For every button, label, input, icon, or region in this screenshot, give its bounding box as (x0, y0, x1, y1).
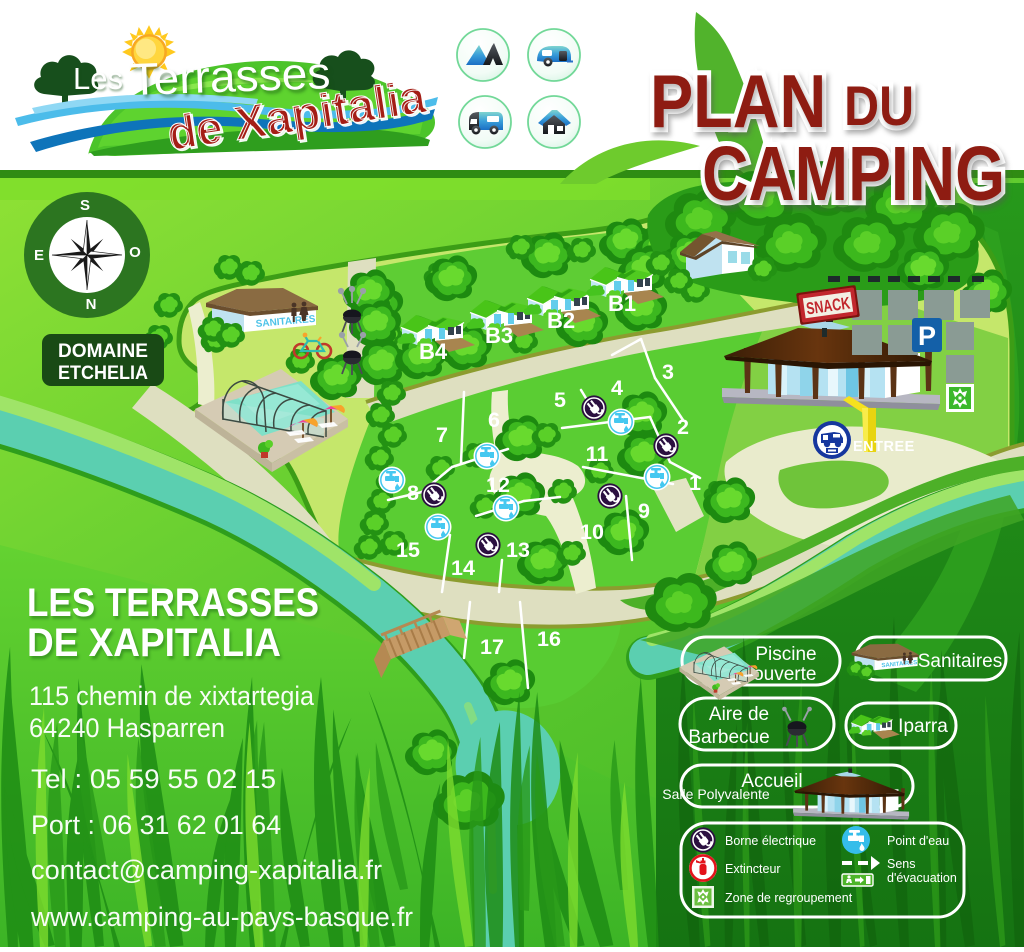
svg-text:d'évacuation: d'évacuation (887, 871, 957, 885)
svg-text:8: 8 (407, 481, 419, 505)
svg-text:DE XAPITALIA: DE XAPITALIA (27, 621, 281, 665)
svg-text:64240 Hasparren: 64240 Hasparren (29, 713, 225, 743)
svg-text:Borne électrique: Borne électrique (725, 834, 816, 848)
svg-text:3: 3 (662, 360, 674, 384)
svg-text:17: 17 (480, 635, 504, 659)
svg-text:Aire de: Aire de (709, 704, 769, 725)
svg-text:Sanitaires: Sanitaires (918, 651, 1003, 672)
svg-text:E: E (34, 247, 44, 264)
svg-text:Tel : 05 59 55 02 15: Tel : 05 59 55 02 15 (31, 764, 276, 794)
svg-text:Salle Polyvalente: Salle Polyvalente (662, 786, 770, 802)
svg-text:DOMAINE: DOMAINE (58, 341, 148, 362)
svg-text:ETCHELIA: ETCHELIA (58, 363, 148, 384)
svg-text:13: 13 (506, 538, 530, 562)
svg-text:15: 15 (396, 538, 420, 562)
svg-text:12: 12 (486, 473, 510, 497)
svg-text:9: 9 (638, 499, 650, 523)
svg-text:Extincteur: Extincteur (725, 862, 781, 876)
svg-text:14: 14 (451, 556, 475, 580)
svg-text:O: O (129, 244, 141, 261)
svg-text:ENTREE: ENTREE (853, 439, 915, 455)
svg-text:Iparra: Iparra (898, 716, 948, 737)
svg-text:B3: B3 (485, 323, 513, 348)
svg-text:7: 7 (436, 423, 448, 447)
svg-text:Zone de regroupement: Zone de regroupement (725, 891, 853, 905)
svg-text:11: 11 (586, 442, 609, 466)
svg-text:contact@camping-xapitalia.fr: contact@camping-xapitalia.fr (31, 855, 382, 885)
svg-text:B4: B4 (419, 339, 448, 364)
svg-text:1: 1 (689, 471, 701, 495)
svg-text:N: N (86, 296, 97, 313)
svg-text:4: 4 (611, 376, 623, 400)
svg-text:LES TERRASSES: LES TERRASSES (27, 581, 319, 625)
svg-text:10: 10 (580, 520, 604, 544)
svg-text:Barbecue: Barbecue (688, 727, 769, 748)
svg-text:Piscine: Piscine (755, 644, 816, 665)
svg-text:Les: Les (73, 61, 123, 96)
svg-text:6: 6 (488, 408, 500, 432)
svg-text:Port : 06 31 62 01 64: Port : 06 31 62 01 64 (31, 810, 281, 840)
svg-text:Sens: Sens (887, 857, 916, 871)
svg-text:www.camping-au-pays-basque.fr: www.camping-au-pays-basque.fr (30, 902, 413, 932)
svg-text:5: 5 (554, 388, 566, 412)
svg-text:CAMPING: CAMPING (702, 131, 1005, 217)
svg-text:Point d'eau: Point d'eau (887, 834, 949, 848)
svg-text:115 chemin de xixtartegia: 115 chemin de xixtartegia (29, 681, 315, 711)
svg-text:B2: B2 (547, 308, 575, 333)
svg-text:P: P (918, 321, 936, 351)
svg-text:2: 2 (677, 415, 689, 439)
svg-text:16: 16 (537, 627, 561, 651)
svg-text:S: S (80, 197, 90, 214)
svg-text:B1: B1 (608, 291, 636, 316)
